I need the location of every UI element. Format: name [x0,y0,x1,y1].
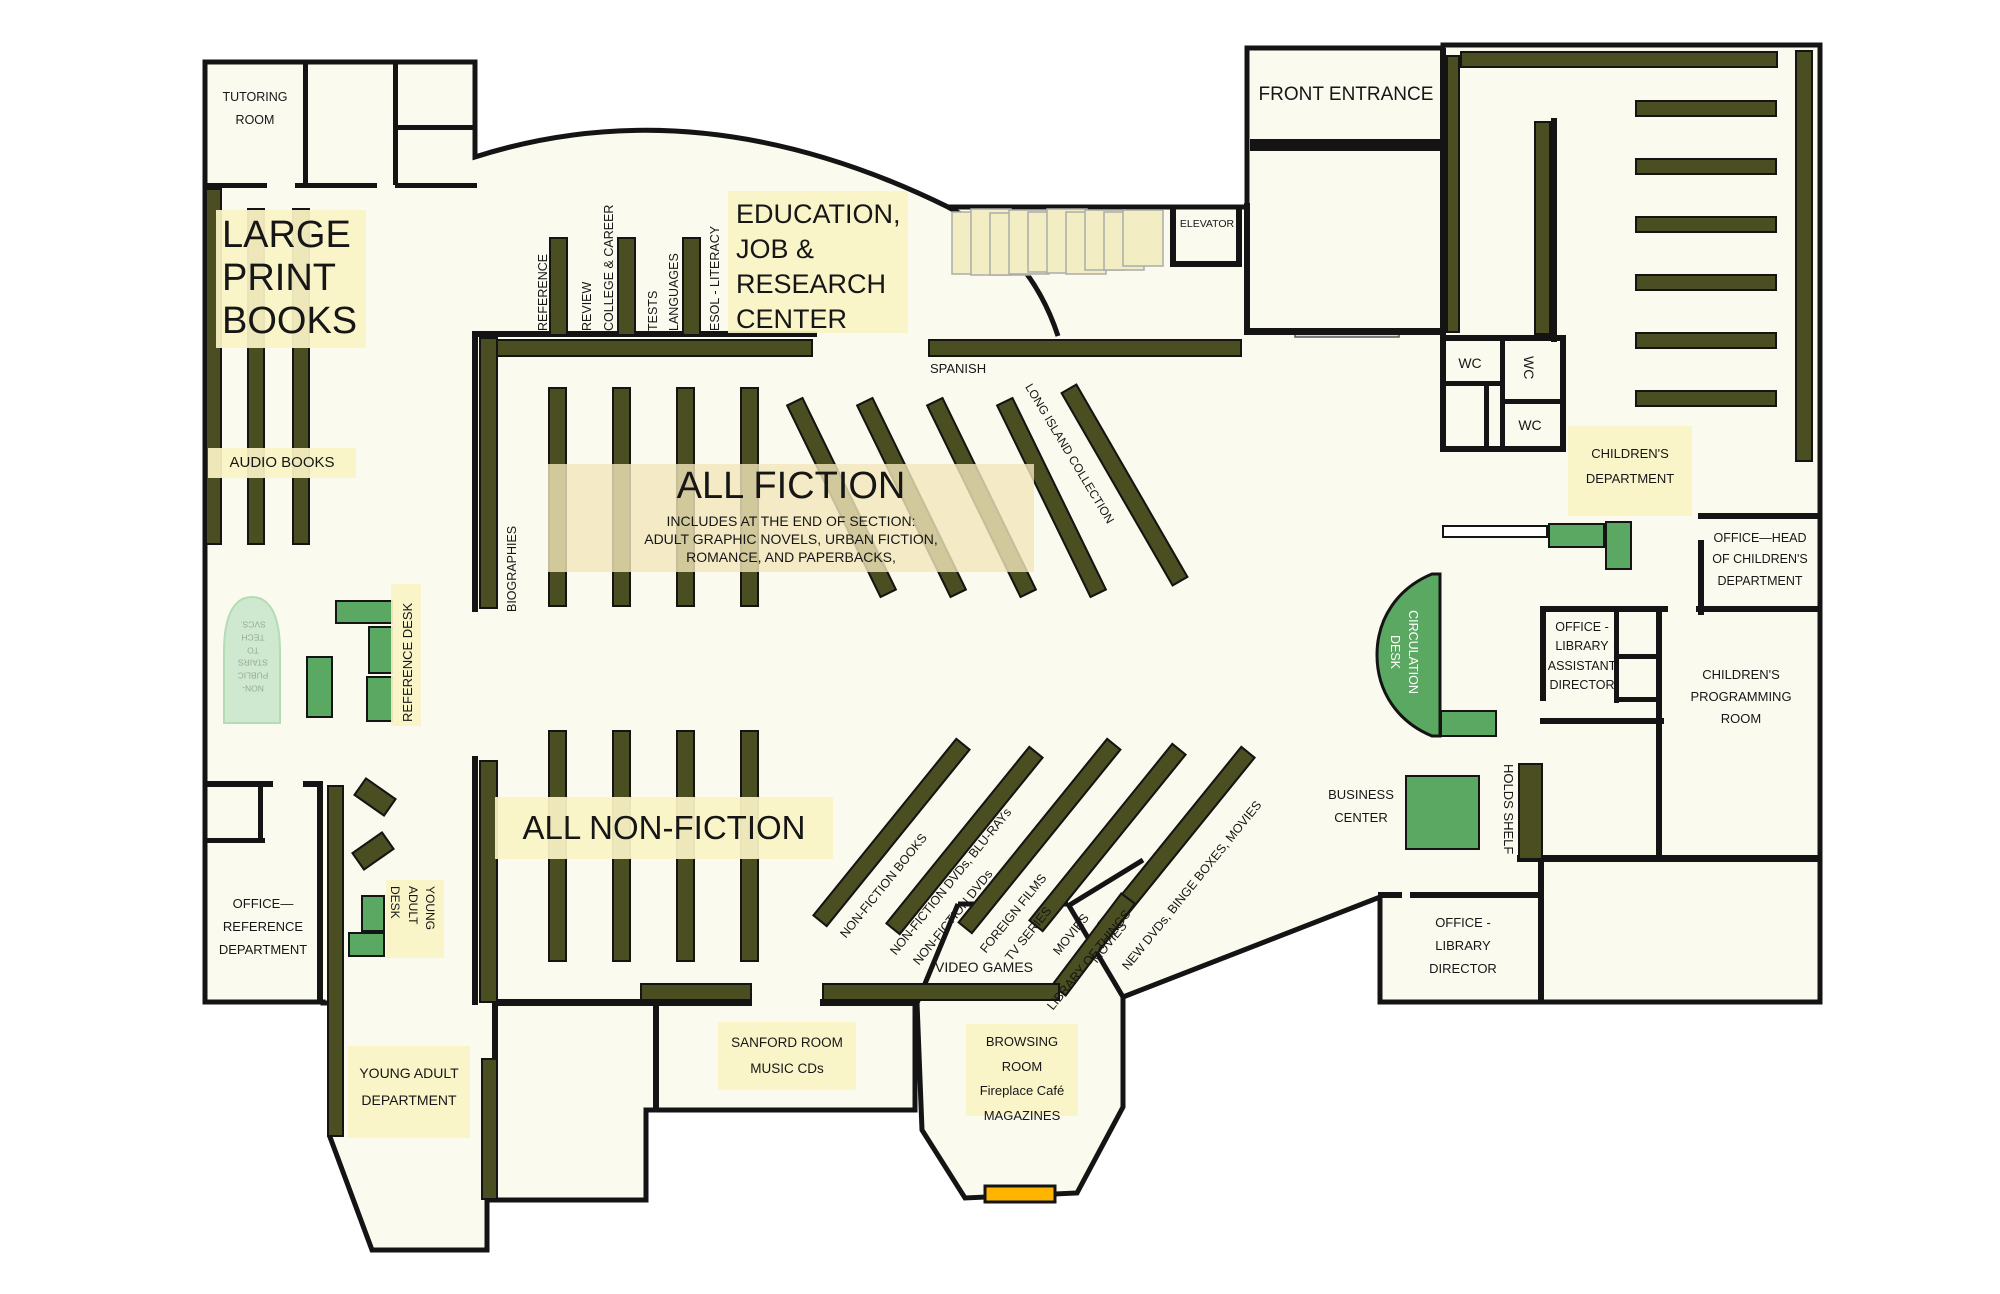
childrens-desk-counter [1442,525,1548,538]
shelf-label-tests: TESTS [643,291,663,331]
wc-label-3: WC [1508,414,1552,436]
library-floor-plan: TUTORING ROOM LARGE PRINT BOOKS AUDIO BO… [0,0,2000,1294]
wall [1378,892,1402,898]
stairs-label: NON- PUBLIC STAIRS TO TECH SVCS. [222,618,284,695]
bookshelf [481,1058,498,1200]
wall [258,783,263,841]
wall [1517,855,1820,862]
biographies-label: BIOGRAPHIES [502,526,522,612]
large-print-label: LARGE PRINT BOOKS [216,210,366,348]
video-games-label: VIDEO GAMES [928,956,1040,978]
wall [1538,860,1544,1002]
education-center-label: EDUCATION, JOB & RESEARCH CENTER [728,191,908,333]
wall [1614,697,1662,702]
bookshelf [1635,158,1777,175]
wall [1656,606,1662,862]
young-adult-desk [348,932,385,957]
bookshelf [682,237,701,336]
office-library-director-label: OFFICE - LIBRARY DIRECTOR [1393,912,1533,980]
young-adult-desk [361,895,385,932]
young-adult-desk-label: YOUNG ADULT DESK [386,886,438,930]
bookshelf-spanish [928,339,1242,357]
shelf-label-reference: REFERENCE [533,254,553,331]
door-gap [1668,606,1696,612]
all-fiction-note: INCLUDES AT THE END OF SECTION: ADULT GR… [548,512,1034,567]
tutoring-room-label: TUTORING ROOM [208,86,302,131]
bookshelf [1795,50,1813,462]
holds-shelf [1518,763,1543,860]
bookshelf [1446,55,1460,333]
all-nonfiction-label: ALL NON-FICTION [495,797,833,859]
childrens-department-label: CHILDREN'S DEPARTMENT [1568,426,1692,516]
bookshelf [1460,51,1778,68]
wall [1540,718,1664,724]
bookshelf-video-games [822,983,1060,1001]
fireplace [985,1186,1055,1202]
wall [1246,328,1444,335]
reference-desk-label: REFERENCE DESK [398,603,419,722]
bookshelf [1635,332,1777,349]
wall [1551,118,1557,342]
wall [1172,261,1242,267]
office-library-assistant-label: OFFICE - LIBRARY ASSISTANT DIRECTOR [1542,618,1622,696]
childrens-desk [1605,521,1632,570]
all-fiction-title: ALL FICTION [548,466,1034,508]
wall [472,331,478,612]
sanford-room-label: SANFORD ROOM MUSIC CDs [718,1022,856,1090]
reference-desk [306,656,333,718]
shelf-label-languages: LANGUAGES [664,253,684,331]
bookshelf [1635,216,1777,233]
office-reference-label: OFFICE— REFERENCE DEPARTMENT [207,893,319,961]
wall [303,62,308,185]
audio-books-label: AUDIO BOOKS [208,448,356,478]
holds-shelf-label: HOLDS SHELF [1497,764,1518,854]
wall [1500,335,1505,447]
bookshelf [1635,390,1777,407]
wall [653,1001,659,1112]
bookshelf-biographies [479,337,498,609]
wc-label-2: WC [1518,356,1540,379]
wall [1698,513,1820,519]
wall [1560,335,1566,452]
wc-label-1: WC [1448,352,1492,374]
business-center-label: BUSINESS CENTER [1318,783,1404,830]
shelf-label-review: REVIEW [577,282,597,331]
circulation-desk-label: CIRCULATION DESK [1386,596,1421,708]
reference-desk [366,676,393,722]
young-adult-dept-label: YOUNG ADULT DEPARTMENT [348,1046,470,1138]
wall [393,125,477,130]
bookshelf [327,785,344,1137]
wall [1440,381,1504,386]
wall [1484,385,1489,451]
bookshelf [640,983,752,1001]
wall [393,62,398,185]
wall [472,756,478,1005]
wall [1170,205,1176,267]
office-head-childrens-label: OFFICE—HEAD OF CHILDREN'S DEPARTMENT [1701,528,1819,592]
wall [205,838,265,843]
bookshelf [1635,274,1777,291]
wall [1236,205,1242,267]
wall [1250,139,1442,151]
reference-desk [368,626,393,674]
business-center-desk [1405,775,1480,850]
bookshelf [496,339,813,357]
wall [1440,335,1446,452]
childrens-desk [1548,523,1605,548]
elevator-label: ELEVATOR [1176,216,1238,233]
paper-fan [952,209,1163,275]
reference-desk [335,600,393,624]
circulation-desk-return [1440,710,1497,737]
bookshelf [617,237,636,336]
childrens-programming-label: CHILDREN'S PROGRAMMING ROOM [1670,664,1812,730]
wall [395,183,477,188]
shelf-label-college-career: COLLEGE & CAREER [599,205,619,331]
wall [1410,892,1543,898]
front-entrance-label: FRONT ENTRANCE [1252,80,1440,110]
bookshelf [1635,100,1777,117]
shelf-label-esol: ESOL - LITERACY [705,226,725,331]
browsing-room-label: BROWSING ROOM Fireplace Café MAGAZINES [966,1024,1078,1116]
wall [1502,399,1564,404]
wall [295,183,377,188]
bookshelf [1534,121,1551,335]
spanish-label: SPANISH [930,359,1010,380]
wall [1244,203,1250,335]
